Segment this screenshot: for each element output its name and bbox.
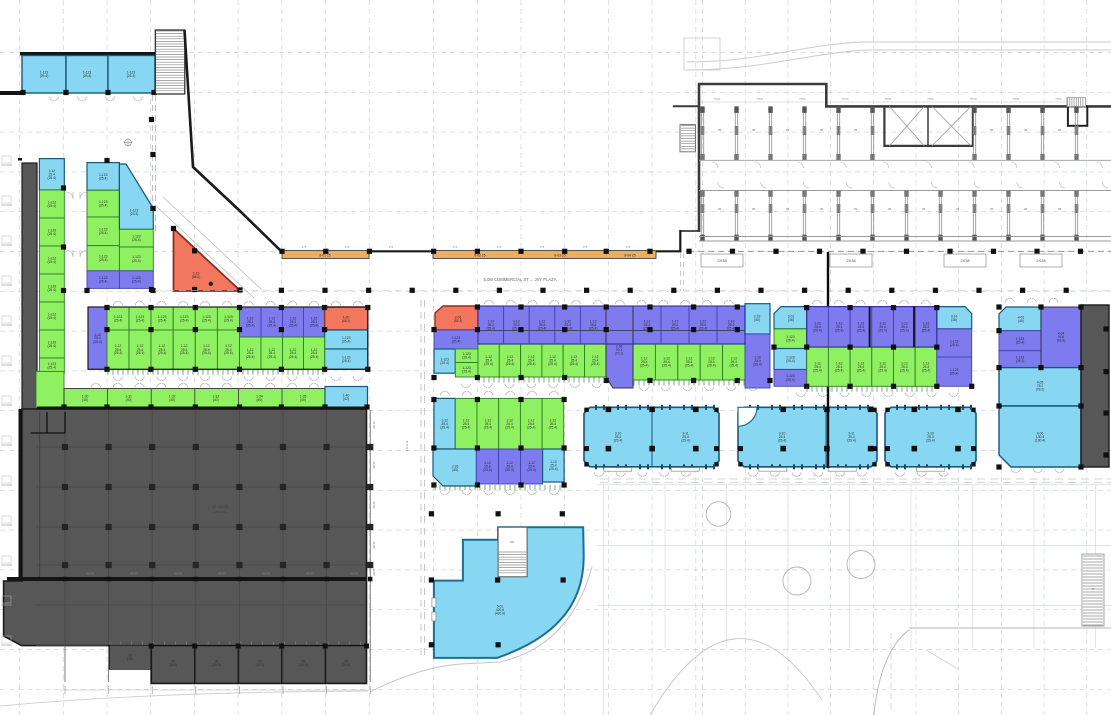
svg-text:(40): (40) [300, 398, 306, 402]
svg-text:4X170: 4X170 [306, 572, 314, 576]
svg-text:(25.4): (25.4) [202, 351, 211, 355]
svg-text:(25.4): (25.4) [132, 238, 141, 242]
svg-text:(25.4): (25.4) [950, 372, 959, 376]
svg-text:(25.4): (25.4) [727, 327, 736, 331]
svg-text:7500: 7500 [1013, 97, 1020, 101]
svg-text:4X170: 4X170 [262, 572, 270, 576]
svg-text:35: 35 [1024, 128, 1028, 132]
svg-text:(25.4): (25.4) [640, 364, 649, 368]
svg-text:35: 35 [1058, 128, 1062, 132]
svg-text:35: 35 [888, 207, 892, 211]
svg-text:(25.4): (25.4) [127, 74, 136, 78]
svg-text:(28): (28) [127, 657, 133, 661]
svg-text:(40): (40) [82, 398, 88, 402]
svg-text:(25.4): (25.4) [47, 366, 56, 370]
svg-text:175: 175 [497, 245, 502, 249]
svg-text:35: 35 [990, 128, 994, 132]
svg-text:(25.4): (25.4) [342, 359, 351, 363]
svg-text:35: 35 [786, 128, 790, 132]
svg-text:(25.4): (25.4) [857, 329, 866, 333]
svg-text:35: 35 [820, 128, 824, 132]
svg-text:(25.4): (25.4) [1016, 359, 1025, 363]
svg-text:( 4582.35 ): ( 4582.35 ) [213, 510, 228, 514]
svg-text:2X38: 2X38 [846, 258, 856, 263]
svg-text:(25.4): (25.4) [614, 439, 623, 443]
svg-text:8-02 25: 8-02 25 [474, 254, 485, 258]
svg-text:(25.4): (25.4) [527, 468, 536, 472]
svg-text:(28.5): (28.5) [212, 663, 221, 667]
svg-text:(25.4): (25.4) [662, 364, 671, 368]
svg-text:(25.4): (25.4) [878, 368, 887, 372]
svg-text:(25.4): (25.4) [180, 351, 189, 355]
svg-text:(25.4): (25.4) [847, 439, 856, 443]
svg-text:5.0M COMMERCIAL ST ... JXY PLA: 5.0M COMMERCIAL ST ... JXY PLAZA [484, 277, 557, 282]
svg-text:(25.4): (25.4) [130, 212, 139, 216]
svg-text:(25.4): (25.4) [114, 318, 123, 322]
svg-text:3X150: 3X150 [372, 541, 376, 549]
svg-text:2X38: 2X38 [960, 258, 970, 263]
svg-text:4X170: 4X170 [86, 572, 94, 576]
svg-text:(25.4): (25.4) [462, 356, 471, 360]
svg-text:(25.4): (25.4) [267, 324, 276, 328]
svg-text:35: 35 [718, 207, 722, 211]
svg-text:(130.4): (130.4) [1035, 439, 1045, 443]
svg-text:(92.6): (92.6) [1057, 339, 1066, 343]
svg-text:(36): (36) [788, 318, 794, 322]
svg-text:(25.4): (25.4) [47, 344, 56, 348]
svg-text:(25.4): (25.4) [786, 378, 795, 382]
svg-text:35: 35 [1024, 207, 1028, 211]
svg-text:(40): (40) [256, 398, 262, 402]
svg-text:(25.4): (25.4) [114, 351, 123, 355]
svg-text:(25.4): (25.4) [99, 258, 108, 262]
svg-text:(25.4): (25.4) [857, 368, 866, 372]
svg-text:175: 175 [302, 245, 307, 249]
svg-text:(25.4): (25.4) [729, 364, 738, 368]
svg-text:4X170: 4X170 [218, 572, 226, 576]
svg-text:7500: 7500 [970, 97, 977, 101]
svg-text:n n s t: n n s t [405, 441, 409, 451]
svg-text:(25.4): (25.4) [40, 74, 49, 78]
svg-text:(25.4): (25.4) [813, 368, 822, 372]
svg-text:(25.4): (25.4) [922, 368, 931, 372]
svg-text:(25.4): (25.4) [900, 329, 909, 333]
svg-text:UP: UP [510, 540, 514, 544]
svg-text:X: X [1092, 587, 1094, 591]
svg-text:(25.4): (25.4) [483, 468, 492, 472]
svg-text:7500: 7500 [756, 97, 763, 101]
svg-text:35: 35 [718, 128, 722, 132]
svg-text:(25.4): (25.4) [926, 439, 935, 443]
svg-text:(25.4): (25.4) [813, 329, 822, 333]
svg-text:35: 35 [854, 207, 858, 211]
svg-text:(25.4): (25.4) [462, 370, 471, 374]
svg-text:(25.4): (25.4) [132, 280, 141, 284]
svg-text:(25.4): (25.4) [310, 324, 319, 328]
svg-text:(25.4): (25.4) [158, 351, 167, 355]
svg-text:(25.4): (25.4) [99, 176, 108, 180]
svg-text:(25.4): (25.4) [591, 362, 600, 366]
svg-text:(25.4): (25.4) [835, 329, 844, 333]
svg-text:35: 35 [956, 207, 960, 211]
svg-text:8-03 25: 8-03 25 [554, 254, 565, 258]
svg-text:(25.4): (25.4) [505, 425, 514, 429]
svg-text:7500: 7500 [1055, 97, 1062, 101]
svg-text:175: 175 [345, 245, 350, 249]
svg-text:(25.4): (25.4) [99, 204, 108, 208]
svg-text:(40): (40) [213, 398, 219, 402]
svg-text:(25.4): (25.4) [246, 355, 255, 359]
svg-text:(25.4): (25.4) [99, 280, 108, 284]
svg-text:(45.1): (45.1) [342, 319, 351, 323]
svg-text:(25.4): (25.4) [527, 425, 536, 429]
svg-text:35: 35 [820, 207, 824, 211]
svg-text:(25.4): (25.4) [47, 232, 56, 236]
svg-text:(25.4): (25.4) [835, 368, 844, 372]
svg-text:7500: 7500 [799, 97, 806, 101]
svg-text:(25.4): (25.4) [47, 288, 56, 292]
svg-text:(25.4): (25.4) [440, 425, 449, 429]
svg-text:175: 175 [626, 245, 631, 249]
svg-text:(25.4): (25.4) [589, 327, 598, 331]
svg-text:2X38: 2X38 [1036, 258, 1046, 263]
svg-text:4X170: 4X170 [350, 572, 358, 576]
svg-text:(40): (40) [1018, 319, 1024, 323]
svg-text:(25.4): (25.4) [778, 439, 787, 443]
svg-text:(25.4): (25.4) [922, 329, 931, 333]
svg-text:35: 35 [1058, 207, 1062, 211]
svg-text:35: 35 [786, 207, 790, 211]
svg-text:(25.4): (25.4) [484, 362, 493, 366]
svg-text:(25.4): (25.4) [1016, 341, 1025, 345]
svg-text:(25.4): (25.4) [180, 318, 189, 322]
svg-text:3X150: 3X150 [372, 461, 376, 469]
svg-text:(25.4): (25.4) [289, 355, 298, 359]
svg-text:7500: 7500 [842, 97, 849, 101]
svg-text:(25.4): (25.4) [878, 329, 887, 333]
svg-text:175: 175 [389, 245, 394, 249]
svg-text:(25.4): (25.4) [47, 176, 56, 180]
svg-text:(25.4): (25.4) [342, 339, 351, 343]
svg-text:35: 35 [854, 128, 858, 132]
svg-text:(25.4): (25.4) [699, 327, 708, 331]
svg-text:(25.4): (25.4) [224, 351, 233, 355]
svg-text:(52.3): (52.3) [454, 319, 463, 323]
svg-text:(25.4): (25.4) [132, 259, 141, 263]
svg-text:(25.4): (25.4) [93, 340, 102, 344]
svg-text:(25.4): (25.4) [47, 316, 56, 320]
svg-text:8-01 25: 8-01 25 [319, 254, 330, 258]
svg-text:3X150: 3X150 [372, 568, 376, 576]
svg-text:(25.4): (25.4) [462, 425, 471, 429]
svg-text:(25.4): (25.4) [486, 327, 495, 331]
svg-text:7500: 7500 [927, 97, 934, 101]
svg-text:(25.4): (25.4) [47, 260, 56, 264]
svg-text:(25.4): (25.4) [527, 362, 536, 366]
svg-text:(25.4): (25.4) [950, 343, 959, 347]
svg-text:3X150: 3X150 [372, 421, 376, 429]
svg-text:2X38: 2X38 [717, 258, 727, 263]
svg-text:(70.1): (70.1) [615, 352, 624, 356]
svg-text:35: 35 [990, 207, 994, 211]
svg-text:7500: 7500 [884, 97, 891, 101]
svg-text:(25.4): (25.4) [267, 355, 276, 359]
svg-text:(25.4): (25.4) [538, 327, 547, 331]
svg-text:(25.4): (25.4) [83, 74, 92, 78]
svg-text:4X170: 4X170 [130, 572, 138, 576]
svg-text:(40): (40) [126, 398, 132, 402]
svg-text:(98.2): (98.2) [192, 275, 201, 279]
svg-text:(25.4): (25.4) [289, 324, 298, 328]
svg-text:(25.4): (25.4) [570, 362, 579, 366]
svg-text:7500: 7500 [714, 97, 721, 101]
svg-text:(25.4): (25.4) [158, 318, 167, 322]
svg-text:(25.4): (25.4) [671, 327, 680, 331]
svg-text:(25.4): (25.4) [136, 351, 145, 355]
svg-text:(25.4): (25.4) [310, 355, 319, 359]
svg-text:35: 35 [922, 207, 926, 211]
svg-text:(25.4): (25.4) [786, 339, 795, 343]
svg-text:(25.4): (25.4) [47, 204, 56, 208]
svg-text:1F 23.00: 1F 23.00 [212, 504, 229, 509]
svg-text:(25.4): (25.4) [786, 359, 795, 363]
svg-text:8-04 25: 8-04 25 [624, 254, 635, 258]
svg-text:175: 175 [453, 245, 458, 249]
svg-text:(25.4): (25.4) [99, 231, 108, 235]
svg-text:3X150: 3X150 [372, 501, 376, 509]
svg-text:(28.5): (28.5) [256, 663, 265, 667]
svg-text:(25.4): (25.4) [549, 467, 558, 471]
svg-text:(25.4): (25.4) [685, 364, 694, 368]
svg-text:(25.4): (25.4) [549, 425, 558, 429]
svg-text:(25.4): (25.4) [506, 362, 515, 366]
svg-text:(36): (36) [951, 318, 957, 322]
svg-text:(25.4): (25.4) [136, 318, 145, 322]
svg-text:(25.4): (25.4) [753, 363, 762, 367]
svg-text:175: 175 [583, 245, 588, 249]
svg-text:(25.4): (25.4) [484, 425, 493, 429]
svg-text:(25.4): (25.4) [681, 439, 690, 443]
svg-text:(25.4): (25.4) [707, 364, 716, 368]
svg-text:(25.4): (25.4) [202, 318, 211, 322]
svg-text:175: 175 [540, 245, 545, 249]
svg-text:(40): (40) [169, 398, 175, 402]
svg-text:(42): (42) [343, 397, 349, 401]
svg-text:(28.5): (28.5) [299, 663, 308, 667]
svg-text:(28.5): (28.5) [169, 663, 178, 667]
svg-text:(25.4): (25.4) [224, 318, 233, 322]
svg-text:(25.4): (25.4) [452, 339, 461, 343]
svg-text:(25.4): (25.4) [548, 362, 557, 366]
svg-text:(78.2): (78.2) [1036, 388, 1045, 392]
svg-text:35: 35 [752, 207, 756, 211]
svg-text:(25.4): (25.4) [246, 324, 255, 328]
svg-text:(25.4): (25.4) [505, 468, 514, 472]
svg-text:(30): (30) [754, 318, 760, 322]
svg-text:(25.4): (25.4) [900, 368, 909, 372]
svg-text:(45): (45) [452, 468, 458, 472]
svg-text:35: 35 [752, 128, 756, 132]
svg-text:(25.4): (25.4) [440, 361, 449, 365]
svg-text:(420.6): (420.6) [495, 612, 505, 616]
svg-text:4X170: 4X170 [174, 572, 182, 576]
svg-text:(28.5): (28.5) [342, 663, 351, 667]
